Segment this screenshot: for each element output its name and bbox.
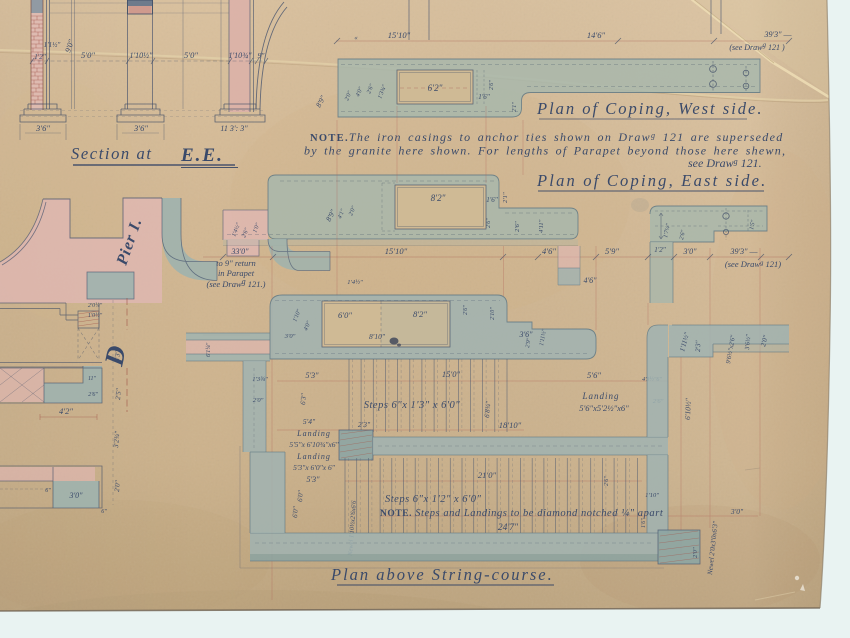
svg-text:Section at: Section at bbox=[71, 144, 153, 163]
svg-text:15'10": 15'10" bbox=[385, 246, 408, 256]
svg-text:3'6": 3'6" bbox=[133, 123, 148, 133]
svg-text:2'6": 2'6" bbox=[486, 218, 492, 228]
svg-text:2'1": 2'1" bbox=[512, 102, 518, 112]
svg-text:5'3": 5'3" bbox=[305, 371, 319, 380]
svg-text:3'6½": 3'6½" bbox=[744, 334, 752, 351]
svg-text:6'0": 6'0" bbox=[338, 310, 352, 320]
svg-text:9": 9" bbox=[258, 51, 266, 60]
svg-text:5'5"x 6'10¾"x6": 5'5"x 6'10¾"x6" bbox=[289, 440, 339, 449]
svg-text:2'1": 2'1" bbox=[502, 192, 509, 203]
svg-text:5'0": 5'0" bbox=[184, 50, 198, 60]
svg-text:Plan of Coping, West side.: Plan of Coping, West side. bbox=[536, 99, 763, 118]
svg-text:(see Drawg 121 ): (see Drawg 121 ) bbox=[729, 41, 785, 52]
svg-text:2'0": 2'0" bbox=[113, 480, 122, 492]
svg-text:2'6": 2'6" bbox=[514, 221, 521, 232]
svg-text:4'2": 4'2" bbox=[59, 406, 73, 416]
svg-text:2'0": 2'0" bbox=[692, 547, 699, 558]
svg-text:1'1½": 1'1½" bbox=[44, 41, 61, 49]
svg-text:14'6": 14'6" bbox=[587, 30, 606, 40]
svg-text:1'2": 1'2" bbox=[34, 53, 45, 61]
svg-text:Plan above String-course.: Plan above String-course. bbox=[330, 565, 554, 584]
svg-text:2'6": 2'6" bbox=[88, 392, 98, 398]
svg-text:6": 6" bbox=[101, 509, 107, 515]
svg-text:3'6": 3'6" bbox=[35, 123, 50, 133]
svg-text:6'10½": 6'10½" bbox=[683, 397, 693, 420]
svg-text:Landing: Landing bbox=[581, 391, 619, 401]
svg-text:2'3": 2'3" bbox=[358, 420, 371, 429]
svg-text:3'0": 3'0" bbox=[682, 247, 697, 256]
svg-text:in Parapet: in Parapet bbox=[218, 268, 255, 278]
svg-text:5'3": 5'3" bbox=[306, 475, 320, 484]
svg-text:24'7": 24'7" bbox=[498, 523, 519, 533]
svg-text:6'2": 6'2" bbox=[428, 83, 443, 93]
svg-text:6'8¾": 6'8¾" bbox=[483, 401, 492, 418]
svg-text:6'3": 6'3" bbox=[299, 393, 308, 405]
svg-text:5'9": 5'9" bbox=[605, 246, 619, 256]
svg-text:Steps 6"x 1'2" x 6'0": Steps 6"x 1'2" x 6'0" bbox=[385, 494, 482, 505]
svg-text:11 3': 3": 11 3': 3" bbox=[220, 124, 248, 133]
svg-text:1'6": 1'6" bbox=[641, 518, 647, 528]
svg-text:11": 11" bbox=[88, 376, 97, 382]
svg-text:2'0": 2'0" bbox=[253, 397, 264, 404]
svg-text:6'0": 6'0" bbox=[291, 506, 300, 518]
svg-text:1'3¾": 1'3¾" bbox=[252, 376, 268, 383]
svg-text:4'11": 4'11" bbox=[538, 219, 545, 233]
svg-text:18'10": 18'10" bbox=[499, 420, 522, 430]
svg-text:2'10": 2'10" bbox=[490, 307, 496, 320]
svg-text:to 9" return: to 9" return bbox=[216, 258, 256, 268]
svg-text:8'2": 8'2" bbox=[431, 193, 446, 203]
svg-text:Landing: Landing bbox=[296, 429, 331, 438]
svg-text:5'3": 5'3" bbox=[113, 350, 122, 362]
svg-text:2'6": 2'6" bbox=[604, 476, 610, 486]
svg-text:Steps 6"x 1'3" x 6'0": Steps 6"x 1'3" x 6'0" bbox=[364, 400, 461, 411]
svg-text:2'5": 2'5" bbox=[114, 388, 123, 400]
svg-text:5'0": 5'0" bbox=[81, 50, 95, 60]
svg-text:3'2¾": 3'2¾" bbox=[112, 431, 122, 449]
svg-text:6'1¼": 6'1¼" bbox=[206, 342, 212, 357]
svg-text:NOTE.The iron casings to ancho: NOTE.The iron casings to anchor ties sho… bbox=[310, 130, 784, 144]
svg-text:Plan of Coping, East side.: Plan of Coping, East side. bbox=[536, 171, 767, 190]
svg-text:5'4": 5'4" bbox=[303, 417, 316, 426]
svg-text:8'10": 8'10" bbox=[369, 332, 386, 341]
svg-text:4'6": 4'6" bbox=[583, 276, 597, 285]
svg-text:8'2": 8'2" bbox=[413, 309, 427, 319]
svg-text:3'0": 3'0" bbox=[730, 507, 744, 516]
svg-text:4'6": 4'6" bbox=[542, 246, 556, 256]
svg-text:1'0½": 1'0½" bbox=[88, 312, 103, 319]
svg-text:1'4½": 1'4½" bbox=[347, 279, 363, 286]
svg-text:(see Drawg 121): (see Drawg 121) bbox=[725, 259, 781, 269]
svg-text:33'0": 33'0" bbox=[230, 247, 249, 256]
svg-text:2'6": 2'6" bbox=[489, 80, 495, 90]
svg-text:1'10¾": 1'10¾" bbox=[228, 51, 252, 60]
svg-text:5'6": 5'6" bbox=[587, 370, 601, 380]
svg-text:1'6": 1'6" bbox=[486, 196, 497, 204]
svg-text:15'0": 15'0" bbox=[442, 369, 461, 379]
svg-text:1'2": 1'2" bbox=[654, 246, 665, 254]
svg-text:2'6": 2'6" bbox=[463, 305, 469, 315]
svg-text:6": 6" bbox=[45, 488, 51, 494]
svg-text:5'6"x5'2½"x6": 5'6"x5'2½"x6" bbox=[579, 403, 629, 413]
svg-text:1'10": 1'10" bbox=[645, 492, 659, 499]
svg-text:1'10½": 1'10½" bbox=[129, 51, 153, 60]
svg-text:15'10": 15'10" bbox=[388, 30, 411, 40]
svg-text:39'3" ―: 39'3" ― bbox=[729, 247, 758, 256]
svg-text:see Drawg 121.: see Drawg 121. bbox=[688, 156, 762, 170]
svg-text:«: « bbox=[354, 34, 358, 42]
svg-text:E.E.: E.E. bbox=[180, 145, 224, 166]
svg-text:2'3": 2'3" bbox=[694, 340, 702, 352]
svg-text:21'0": 21'0" bbox=[478, 470, 497, 480]
svg-text:5'3"x 6'0"x 6": 5'3"x 6'0"x 6" bbox=[293, 463, 336, 472]
svg-text:(see Drawg 121.): (see Drawg 121.) bbox=[206, 277, 265, 289]
svg-text:NOTE. Steps and Landings to be: NOTE. Steps and Landings to be diamond n… bbox=[380, 508, 664, 519]
svg-text:39'3" ―: 39'3" ― bbox=[763, 30, 792, 39]
svg-text:6'0": 6'0" bbox=[296, 490, 305, 502]
svg-text:2'0¼": 2'0¼" bbox=[88, 303, 103, 309]
svg-text:3'0": 3'0" bbox=[284, 333, 296, 340]
svg-text:3'0": 3'0" bbox=[68, 491, 83, 500]
svg-text:Landing: Landing bbox=[296, 452, 331, 461]
